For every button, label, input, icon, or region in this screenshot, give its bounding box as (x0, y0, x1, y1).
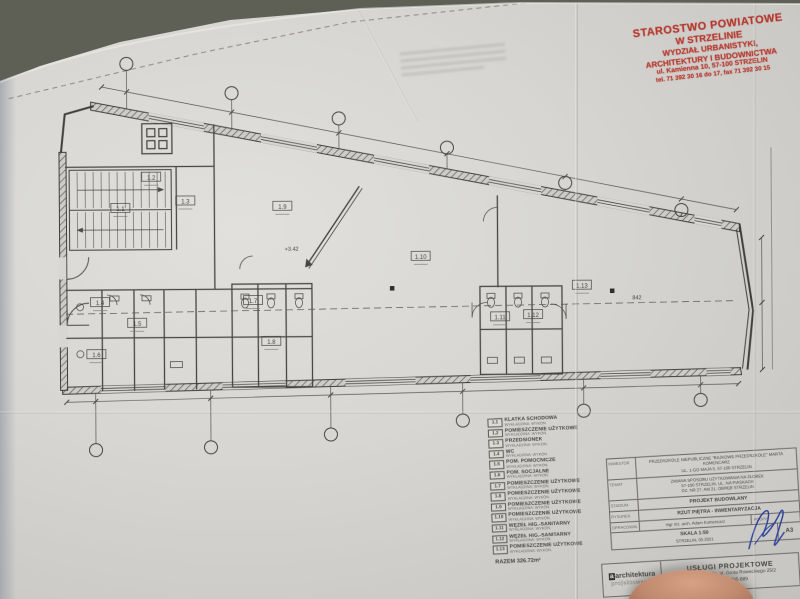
room-tag: 1.10 (411, 251, 430, 264)
stadium-label: STADIUM (609, 499, 639, 511)
investor-label: INWESTOR (607, 458, 637, 479)
interior-walls (65, 122, 563, 391)
svg-text:1.2: 1.2 (147, 176, 156, 182)
svg-text:1.6: 1.6 (92, 353, 101, 359)
axis-circle (694, 393, 707, 406)
room-tag: 1.12 (524, 310, 543, 323)
svg-text:1.3: 1.3 (181, 199, 190, 205)
legend-room-number: 1.6 (490, 471, 505, 480)
room-tag: 1.9 (273, 201, 292, 214)
legend-room-number: 1.8 (490, 492, 505, 501)
fold-crease-horizontal (0, 411, 800, 414)
room-tag: 1.8 (262, 336, 281, 349)
axis-circle (559, 176, 572, 189)
legend-room-number: 1.9 (491, 503, 506, 512)
axis-circle (324, 428, 337, 441)
legend-room-number: 1.5 (489, 460, 504, 469)
dimension-label: 842 (632, 295, 641, 301)
room-tag: 1.5 (128, 318, 147, 331)
axis-circle (456, 414, 469, 427)
dimension-lines (62, 80, 773, 405)
legend-room-number: 1.7 (490, 482, 505, 491)
exterior-walls (59, 98, 754, 395)
legend-room-number: 1.13 (493, 545, 508, 554)
room-legend: 1.1KLATKA SCHODOWAWYKŁADZINA: WYKON.1.2P… (487, 413, 623, 565)
legend-room-number: 1.1 (487, 418, 502, 427)
legend-room-number: 1.2 (488, 429, 503, 438)
room-tag: 1.7 (243, 295, 262, 308)
svg-text:1.9: 1.9 (278, 205, 287, 211)
legend-room-number: 1.12 (492, 535, 507, 544)
room-tag: 1.3 (176, 196, 195, 209)
svg-text:1.10: 1.10 (415, 255, 427, 261)
oprac-label: OPRACOWAŁ (611, 522, 640, 533)
window-openings (99, 108, 731, 393)
axis-circle (440, 141, 453, 154)
desk-surface (0, 0, 800, 90)
svg-text:1.4: 1.4 (96, 301, 105, 307)
legend-room-number: 1.11 (492, 524, 507, 533)
section-line (305, 186, 363, 268)
svg-text:1.8: 1.8 (267, 340, 276, 346)
axis-circle (89, 444, 102, 457)
ventilation-grid-symbol (142, 124, 172, 154)
legend-room-number: 1.3 (488, 439, 503, 448)
rysunek-label: RYSUNEK (610, 511, 640, 523)
room-tag: 1.2 (142, 172, 161, 185)
level-mark: +3.42 (285, 247, 299, 253)
svg-text:1.12: 1.12 (527, 313, 539, 319)
svg-text:1.5: 1.5 (133, 322, 142, 328)
photo-of-floor-plan-document: 842 +3.42 1.11.21.31.41.51.61.71.81.91.1… (0, 0, 800, 599)
legend-room-number: 1.10 (491, 513, 506, 522)
signature-scribble (726, 487, 800, 562)
svg-text:1.11: 1.11 (494, 315, 506, 321)
svg-text:1.7: 1.7 (249, 299, 258, 305)
axis-circle (332, 112, 345, 125)
temat-label: TEMAT (608, 479, 638, 500)
svg-text:1.1: 1.1 (116, 207, 125, 213)
axis-circle (204, 441, 217, 454)
room-tag: 1.4 (90, 298, 109, 311)
axis-markers (87, 53, 708, 456)
legend-room-sub: WYKŁADZINA: WYKON. (510, 547, 583, 554)
legend-room-number: 1.4 (489, 450, 504, 459)
